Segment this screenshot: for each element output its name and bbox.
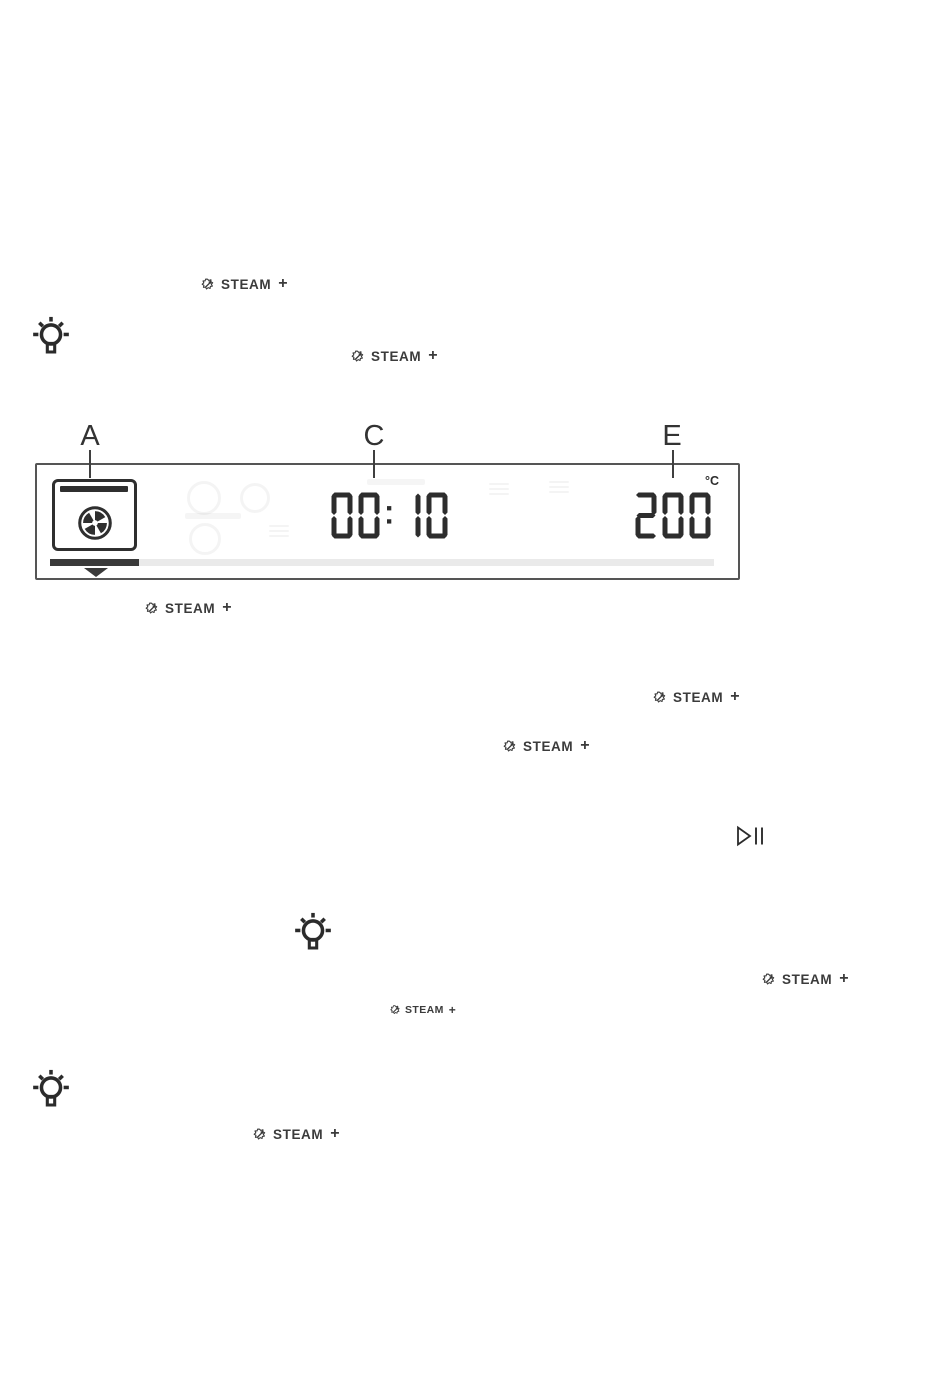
steam-plus-badge: STEAM + [200,276,288,292]
plus-sign: + [278,276,287,292]
temperature-unit: °C [692,474,732,488]
plus-sign: + [730,689,739,705]
plus-sign: + [330,1126,339,1142]
callout-letter-e: E [642,420,702,453]
steam-icon [350,349,365,364]
steam-label: STEAM [405,1004,444,1016]
steam-plus-badge: STEAM + [652,689,740,705]
steam-plus-indicator: STEAM + [389,1004,456,1016]
steam-plus-badge: STEAM + [144,600,232,616]
steam-icon [252,1127,267,1142]
triangle-down-marker [84,568,108,577]
fan-cooking-icon [74,502,116,549]
callout-letter-a: A [60,420,120,453]
progress-track [50,559,714,566]
temperature-display [635,492,711,544]
manual-page: STEAM + STEAM + A C E [0,0,950,1383]
callout-line-c [373,450,375,478]
callout-line-e [672,450,674,478]
progress-fill [50,559,139,566]
steam-label: STEAM [221,277,271,292]
inactive-indicator [187,481,221,515]
lightbulb-tip-icon [293,910,333,959]
plus-sign: + [839,971,848,987]
top-heat-bar [60,486,128,492]
oven-display-panel: STEAM + °C [35,463,740,580]
steam-label: STEAM [273,1127,323,1142]
inactive-indicator [269,525,289,540]
plus-sign: + [428,348,437,364]
steam-icon [502,739,517,754]
steam-label: STEAM [673,690,723,705]
steam-icon [389,1004,401,1016]
plus-sign: + [580,738,589,754]
steam-icon [200,277,215,292]
inactive-indicator [489,483,509,498]
play-pause-icon [734,823,768,854]
steam-plus-badge: STEAM + [252,1126,340,1142]
steam-icon [761,972,776,987]
steam-icon [652,690,667,705]
lightbulb-tip-icon [31,314,71,363]
oven-function-icon [52,479,137,551]
steam-icon [144,601,159,616]
steam-label: STEAM [165,601,215,616]
plus-sign: + [222,600,231,616]
inactive-indicator [549,481,569,496]
lightbulb-tip-icon [31,1067,71,1116]
steam-plus-badge: STEAM + [761,971,849,987]
inactive-indicator [185,513,241,519]
steam-plus-badge: STEAM + [350,348,438,364]
plus-sign: + [449,1004,456,1016]
inactive-indicator [367,479,425,485]
inactive-indicator [240,483,270,513]
steam-label: STEAM [523,739,573,754]
callout-letter-c: C [344,420,404,453]
steam-plus-badge: STEAM + [502,738,590,754]
callout-line-a [89,450,91,478]
inactive-indicator [189,523,221,555]
steam-label: STEAM [371,349,421,364]
steam-label: STEAM [782,972,832,987]
time-display [331,492,448,544]
